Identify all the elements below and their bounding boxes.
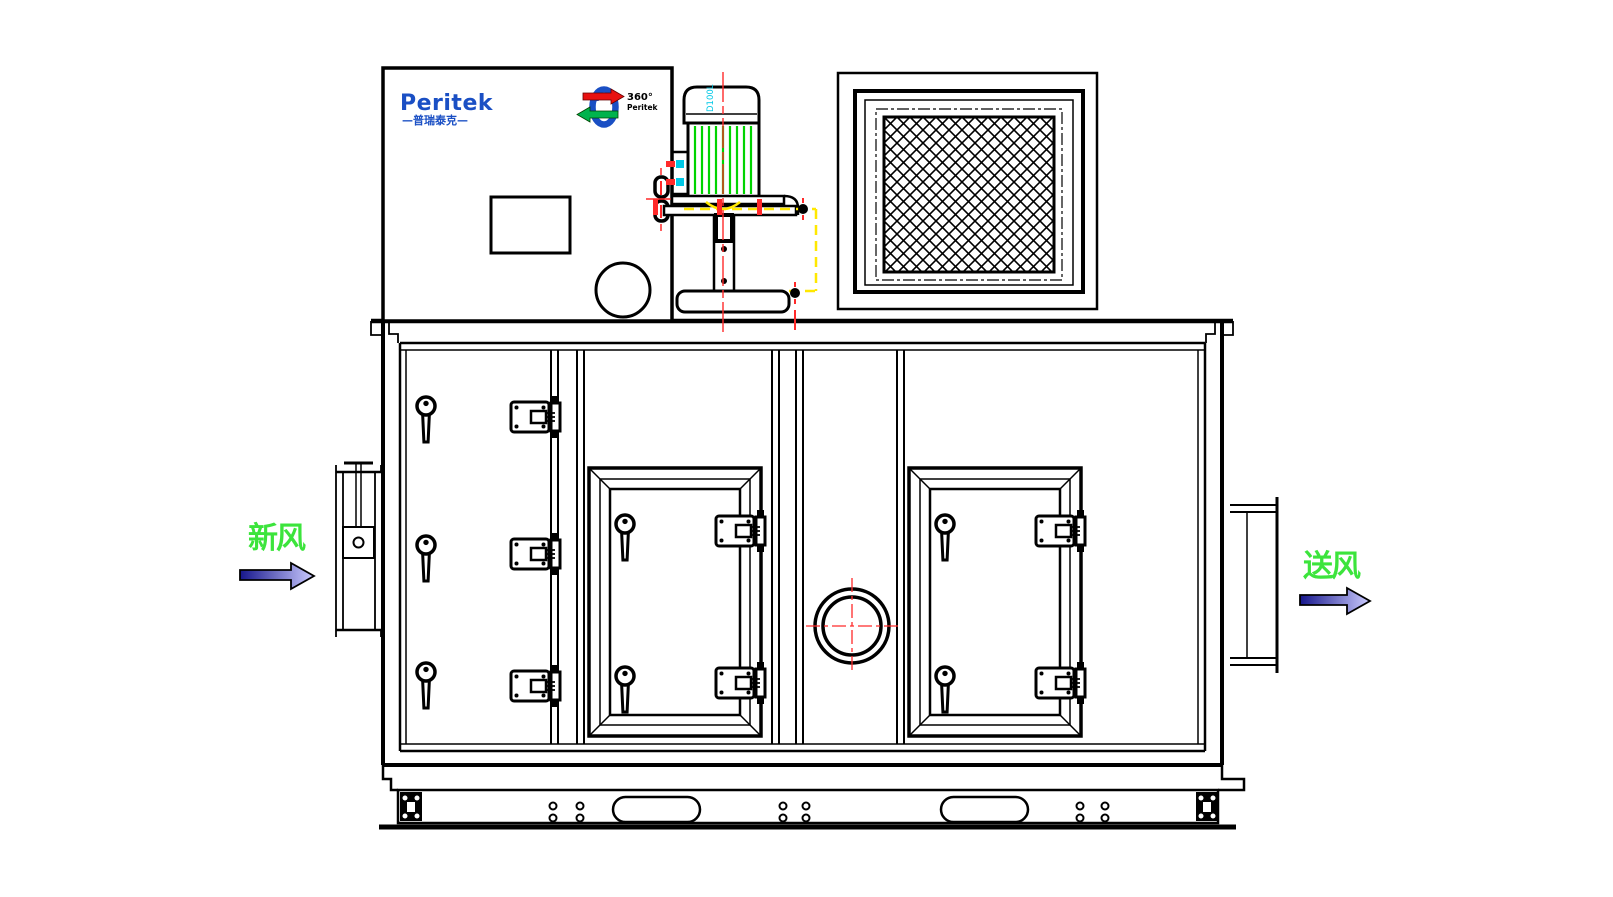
badge-line1: 360° [627, 92, 653, 103]
supply-air-label: 送风 [1303, 549, 1361, 584]
forklift-slot [613, 797, 700, 822]
door-latch [716, 662, 765, 704]
door-latch [511, 396, 560, 438]
door-handle-icon [417, 663, 435, 708]
damper-actuator-box [343, 527, 374, 558]
door-latch [716, 510, 765, 552]
badge-line2: Peritek [627, 103, 659, 112]
inlet-flange-assembly [336, 463, 383, 637]
door-latch [511, 533, 560, 575]
door-latch [511, 665, 560, 707]
door-latch [1036, 510, 1085, 552]
left-access-panel [417, 396, 560, 708]
door-latch [1036, 662, 1085, 704]
base-bracket-left [400, 792, 422, 821]
fresh-air-arrow-icon [240, 563, 314, 589]
forklift-slot [941, 797, 1028, 822]
drawing-canvas: Peritek —普瑞泰克— 360° Peritek D100L [0, 0, 1613, 897]
upper-control-box: Peritek —普瑞泰克— 360° Peritek [383, 68, 678, 321]
fresh-air-label: 新风 [248, 521, 306, 556]
unit-front-elevation-drawing: Peritek —普瑞泰克— 360° Peritek D100L [0, 0, 1613, 897]
outlet-flange [1230, 497, 1277, 673]
panel-divider-b [772, 350, 803, 744]
base-rail [398, 790, 1218, 823]
support-base-plate [677, 291, 789, 312]
base-step-right [1218, 765, 1244, 790]
main-cabinet [371, 321, 1233, 765]
middle-access-door [589, 468, 765, 736]
base-frame [379, 765, 1244, 827]
filter-grille-box [838, 73, 1097, 309]
motor-cap [684, 87, 759, 123]
fresh-air-callout: 新风 [240, 521, 314, 589]
mesh-grille [884, 117, 1054, 272]
door-handle-icon [417, 536, 435, 581]
motor-mounting-platform [664, 196, 798, 215]
supply-air-callout: 送风 [1300, 549, 1370, 614]
base-bracket-right [1196, 792, 1218, 821]
supply-air-arrow-icon [1300, 588, 1370, 614]
motor-frame-label: D100L [706, 84, 716, 112]
door-handle-icon [417, 397, 435, 442]
cap-step-right [1206, 321, 1233, 343]
brand-logo-subtext: —普瑞泰克— [402, 113, 468, 127]
motor-support-column [677, 215, 789, 312]
base-step-left [383, 765, 398, 790]
motor-assembly: D100L [653, 72, 816, 332]
brand-logo-text: Peritek [400, 91, 494, 116]
sight-glass [806, 578, 898, 674]
panel-divider-c [897, 350, 904, 744]
right-access-door [909, 468, 1085, 736]
